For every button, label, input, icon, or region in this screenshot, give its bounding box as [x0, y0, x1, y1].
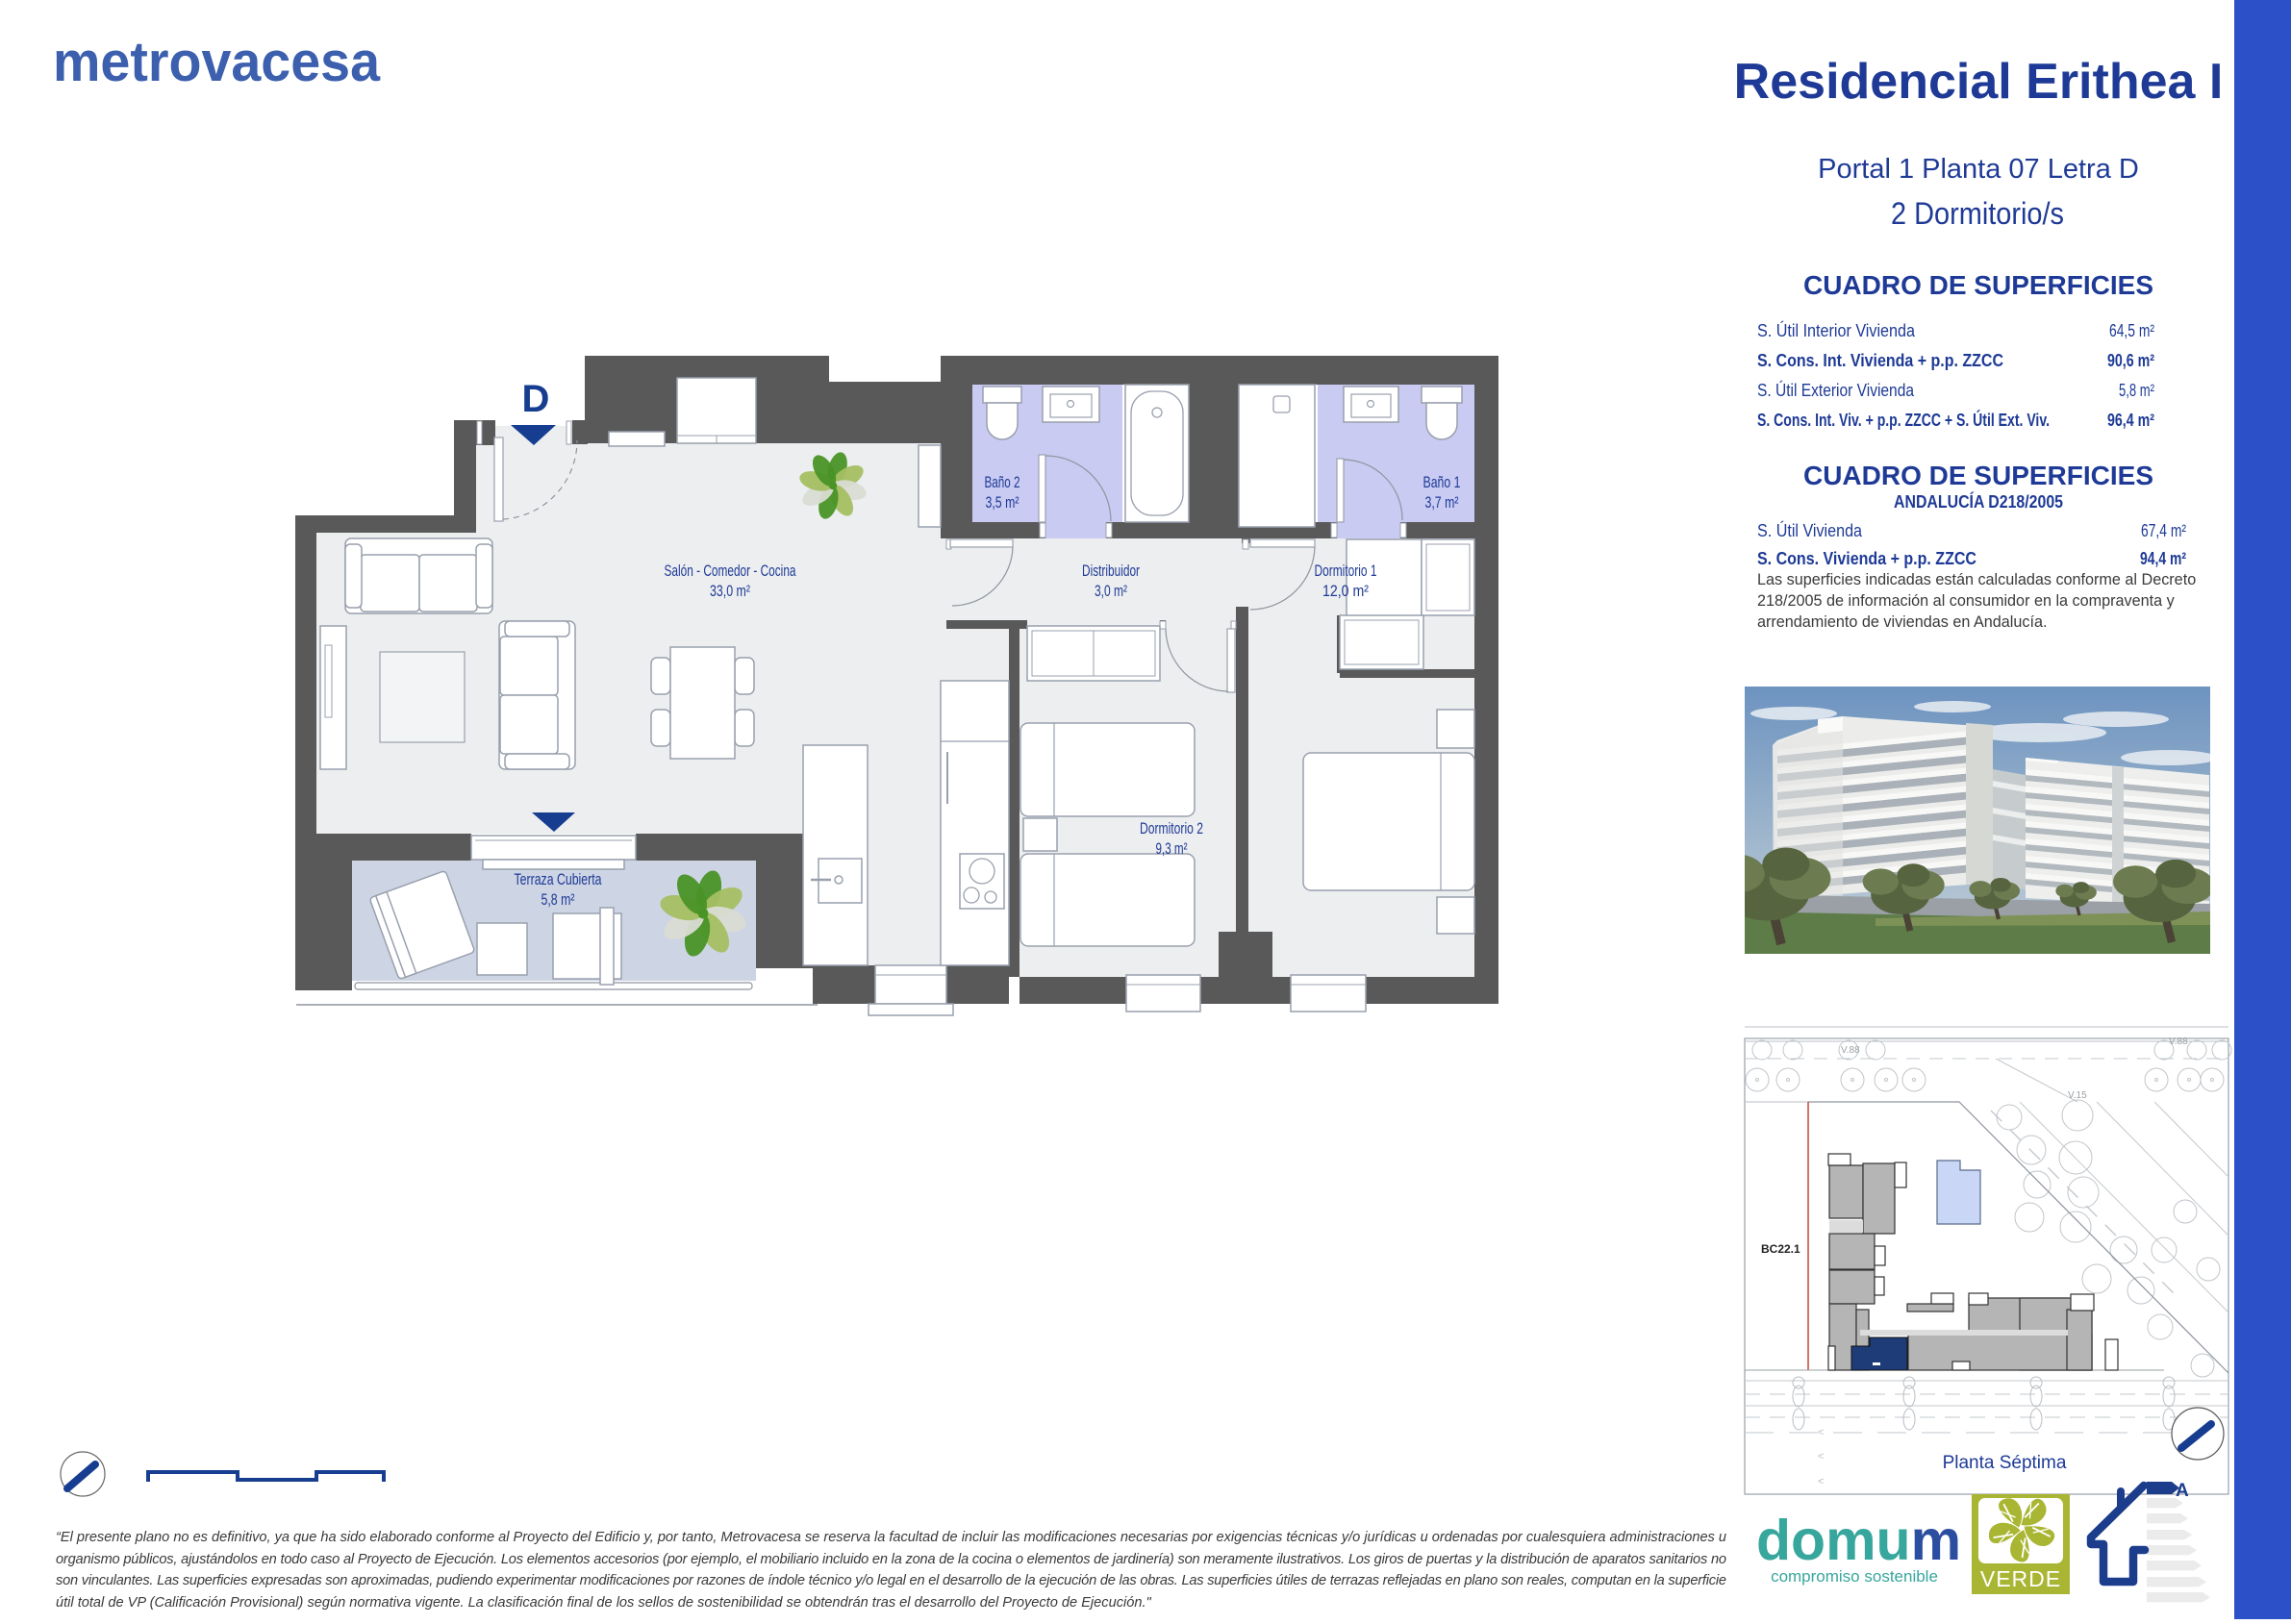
svg-text:CUADRO DE SUPERFICIES: CUADRO DE SUPERFICIES	[1803, 461, 2153, 490]
svg-text:3,5 m²: 3,5 m²	[986, 493, 1020, 512]
svg-text:BC22.1: BC22.1	[1761, 1242, 1800, 1256]
svg-text:S. Útil Interior Vivienda: S. Útil Interior Vivienda	[1757, 320, 1916, 340]
svg-text:S. Cons. Int. Viv. + p.p. ZZCC: S. Cons. Int. Viv. + p.p. ZZCC + S. Útil…	[1757, 410, 2050, 430]
svg-text:S. Útil Vivienda: S. Útil Vivienda	[1757, 520, 1863, 540]
svg-text:Salón - Comedor - Cocina: Salón - Comedor - Cocina	[665, 562, 796, 580]
svg-text:A: A	[2176, 1481, 2189, 1501]
svg-text:5,8 m²: 5,8 m²	[2119, 381, 2154, 400]
svg-text:<: <	[1818, 1427, 1824, 1438]
svg-text:90,6 m²: 90,6 m²	[2107, 351, 2154, 370]
svg-text:<: <	[1818, 1476, 1824, 1487]
svg-text:Terraza Cubierta: Terraza Cubierta	[515, 870, 602, 888]
svg-text:domum: domum	[1756, 1509, 1961, 1572]
svg-text:CUADRO DE SUPERFICIES: CUADRO DE SUPERFICIES	[1803, 270, 2153, 300]
svg-text:metrovacesa: metrovacesa	[53, 31, 381, 93]
svg-text:Residencial Erithea I: Residencial Erithea I	[1734, 54, 2224, 110]
svg-text:Dormitorio 1: Dormitorio 1	[1315, 562, 1377, 580]
svg-text:útil total de VP (Calificación: útil total de VP (Calificación Provision…	[56, 1595, 1152, 1611]
svg-text:Baño 2: Baño 2	[985, 473, 1020, 491]
svg-text:S. Cons. Vivienda + p.p. ZZCC: S. Cons. Vivienda + p.p. ZZCC	[1757, 549, 1976, 568]
svg-text:ANDALUCÍA D218/2005: ANDALUCÍA D218/2005	[1894, 491, 2063, 512]
svg-text:“El presente plano no es defin: “El presente plano no es definitivo, ya …	[56, 1530, 1726, 1545]
svg-text:33,0 m²: 33,0 m²	[710, 582, 750, 600]
svg-text:96,4 m²: 96,4 m²	[2107, 411, 2154, 430]
svg-text:arrendamiento de viviendas en: arrendamiento de viviendas en Andalucía.	[1757, 613, 2047, 631]
svg-text:9,3 m²: 9,3 m²	[1156, 839, 1188, 858]
svg-text:son vinculantes. Las superfici: son vinculantes. Las superficies expresa…	[56, 1573, 1726, 1588]
svg-text:Distribuidor: Distribuidor	[1082, 562, 1140, 580]
svg-text:V.15: V.15	[2068, 1090, 2087, 1101]
svg-text:64,5 m²: 64,5 m²	[2109, 321, 2154, 340]
svg-text:2 Dormitorio/s: 2 Dormitorio/s	[1891, 196, 2064, 231]
svg-text:67,4 m²: 67,4 m²	[2141, 521, 2186, 540]
svg-text:<: <	[1818, 1451, 1824, 1462]
svg-text:Baño 1: Baño 1	[1423, 473, 1461, 491]
svg-text:Las superficies indicadas está: Las superficies indicadas están calculad…	[1757, 571, 2196, 588]
svg-text:V.88: V.88	[2169, 1037, 2188, 1047]
svg-text:VERDE: VERDE	[1980, 1566, 2061, 1591]
svg-text:218/2005 de información al con: 218/2005 de información al consumidor en…	[1757, 592, 2176, 610]
svg-text:5,8 m²: 5,8 m²	[541, 890, 575, 909]
svg-text:D: D	[522, 378, 550, 420]
svg-text:Planta Séptima: Planta Séptima	[1943, 1453, 2067, 1473]
svg-text:V.88: V.88	[1841, 1045, 1860, 1056]
svg-text:3,7 m²: 3,7 m²	[1425, 493, 1459, 512]
svg-text:S. Cons. Int. Vivienda + p.p.: S. Cons. Int. Vivienda + p.p. ZZCC	[1757, 351, 2003, 370]
svg-text:organismo públicos, ajustándol: organismo públicos, ajustándolos en todo…	[56, 1552, 1726, 1567]
svg-text:Portal 1 Planta 07 Letra D: Portal 1 Planta 07 Letra D	[1818, 154, 2139, 185]
svg-text:94,4 m²: 94,4 m²	[2140, 549, 2186, 568]
svg-text:compromiso sostenible: compromiso sostenible	[1771, 1567, 1938, 1586]
svg-text:Dormitorio 2: Dormitorio 2	[1140, 819, 1203, 837]
svg-text:12,0 m²: 12,0 m²	[1322, 582, 1369, 600]
svg-text:3,0 m²: 3,0 m²	[1095, 582, 1127, 600]
svg-text:S. Útil Exterior Vivienda: S. Útil Exterior Vivienda	[1757, 380, 1915, 400]
